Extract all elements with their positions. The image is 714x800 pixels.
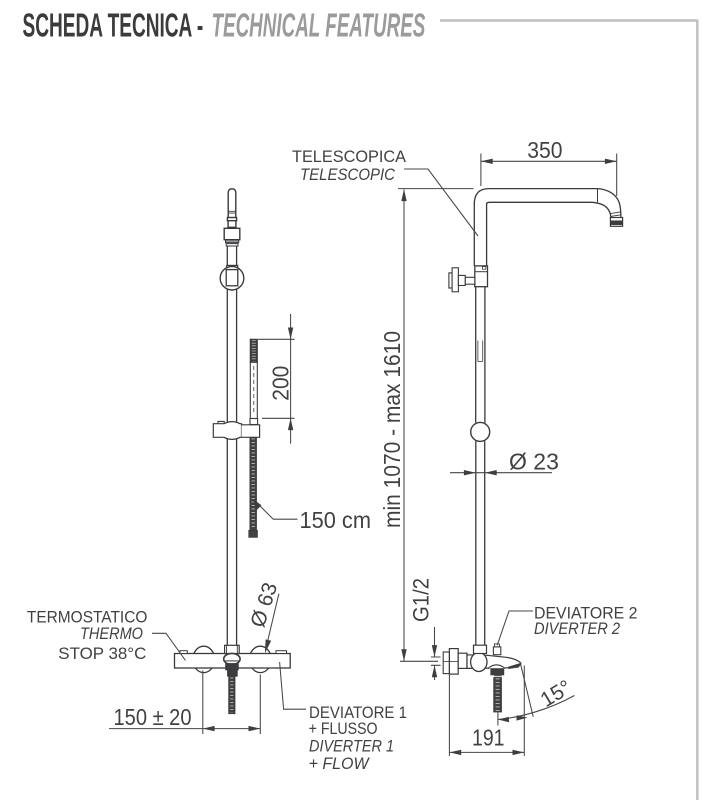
svg-text:G1/2: G1/2 [408, 578, 433, 622]
svg-text:350: 350 [527, 137, 562, 163]
svg-text:SCHEDA TECNICA -: SCHEDA TECNICA - [23, 7, 204, 44]
svg-text:Ø 63: Ø 63 [246, 580, 282, 630]
svg-text:150 cm: 150 cm [300, 507, 372, 533]
svg-text:TERMOSTATICO: TERMOSTATICO [27, 609, 148, 627]
svg-text:STOP 38°C: STOP 38°C [58, 645, 146, 663]
svg-text:+ FLUSSO: + FLUSSO [309, 720, 378, 738]
svg-text:TELESCOPICA: TELESCOPICA [292, 148, 406, 166]
svg-text:150 ± 20: 150 ± 20 [114, 704, 192, 730]
svg-text:TECHNICAL FEATURES: TECHNICAL FEATURES [212, 7, 426, 44]
svg-text:THERMO: THERMO [80, 625, 143, 643]
svg-text:200: 200 [268, 366, 294, 401]
svg-text:15°: 15° [537, 676, 576, 712]
svg-text:DIVERTER 2: DIVERTER 2 [534, 620, 620, 638]
svg-text:min 1070 - max 1610: min 1070 - max 1610 [379, 331, 405, 528]
svg-text:+ FLOW: + FLOW [309, 755, 370, 773]
svg-text:TELESCOPIC: TELESCOPIC [300, 166, 395, 184]
svg-text:Ø 23: Ø 23 [509, 449, 559, 475]
svg-text:191: 191 [472, 725, 505, 751]
svg-text:DIVERTER 1: DIVERTER 1 [309, 738, 394, 756]
